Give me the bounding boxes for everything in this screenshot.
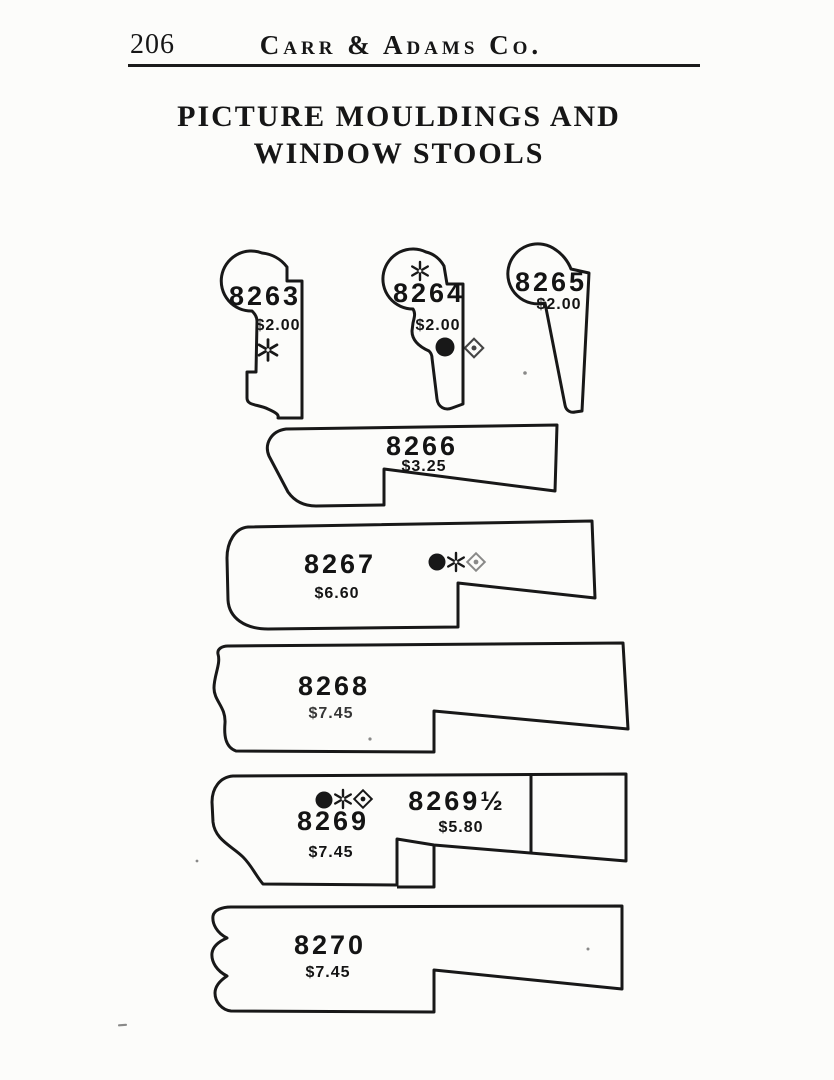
moulding-price-label: $7.45 <box>308 844 353 861</box>
diamond-icon <box>465 339 483 357</box>
mouldings-drawing: 8263 $2.00 8264 $2.00 8265 $2.00 8266 $3… <box>0 0 834 1080</box>
moulding-price-label: $2.00 <box>415 317 460 334</box>
moulding-price-label: $2.00 <box>536 296 581 313</box>
catalog-page: 206 Carr & Adams Co. PICTURE MOULDINGS A… <box>0 0 834 1080</box>
moulding-8269-groove-line <box>397 845 434 887</box>
scan-speck <box>118 1024 127 1027</box>
scan-speck <box>196 860 199 863</box>
moulding-number-label: 8264 <box>393 278 465 308</box>
scan-speck <box>587 948 590 951</box>
scan-speck <box>523 371 527 375</box>
moulding-8270-profile <box>212 906 622 1012</box>
moulding-8267-profile <box>227 521 595 629</box>
moulding-number-label: 8269½ <box>408 786 506 816</box>
moulding-price-label: $7.45 <box>305 964 350 981</box>
moulding-number-label: 8263 <box>229 281 301 311</box>
moulding-number-label: 8270 <box>294 930 366 960</box>
moulding-number-label: 8268 <box>298 671 370 701</box>
moulding-price-label: $6.60 <box>314 585 359 602</box>
moulding-price-label: $2.00 <box>255 317 300 334</box>
moulding-price-label: $3.25 <box>401 458 446 475</box>
moulding-price-label: $5.80 <box>438 819 483 836</box>
moulding-number-label: 8266 <box>386 431 458 461</box>
dot-icon <box>436 338 455 357</box>
scan-speck <box>368 737 371 740</box>
moulding-8268-profile <box>214 643 628 752</box>
moulding-price-label: $7.45 <box>308 705 353 722</box>
moulding-number-label: 8267 <box>304 549 376 579</box>
moulding-number-label: 8269 <box>297 806 369 836</box>
moulding-8263-profile <box>221 251 302 418</box>
moulding-number-label: 8265 <box>515 267 587 297</box>
dot-icon <box>429 554 446 571</box>
